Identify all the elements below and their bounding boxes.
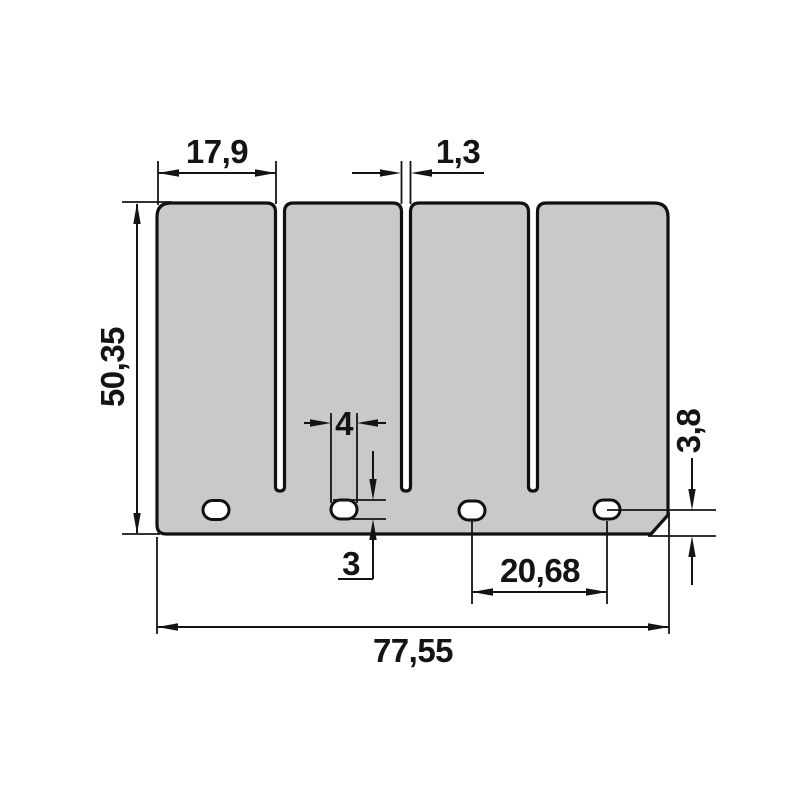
arrowhead-left: [472, 588, 493, 595]
arrowhead-right: [586, 588, 607, 595]
mounting-hole-3: [459, 501, 485, 520]
dimension-label: 50,35: [94, 327, 131, 407]
dimension-label: 3,8: [670, 409, 707, 454]
dim-finger-width: 17,9: [158, 133, 276, 205]
arrowhead-down: [688, 489, 695, 510]
dimension-label: 4: [335, 405, 354, 442]
technical-drawing-canvas: 17,9 1,3 50,35 4 3: [0, 0, 800, 800]
dimension-label: 77,55: [373, 632, 453, 669]
mounting-hole-1: [203, 501, 229, 520]
arrowhead-left: [380, 169, 401, 176]
dimension-label: 17,9: [186, 133, 248, 170]
arrowhead-right: [411, 169, 432, 176]
reed-valve-drawing: 17,9 1,3 50,35 4 3: [0, 0, 800, 800]
dim-slot-width: 1,3: [352, 133, 484, 204]
part-body: [157, 203, 668, 534]
dimension-label: 20,68: [500, 552, 580, 589]
arrowhead-up: [688, 536, 695, 557]
arrowhead-up: [133, 203, 140, 224]
arrowhead-right: [255, 169, 276, 176]
arrowhead-right: [648, 623, 669, 630]
mounting-hole-2: [331, 500, 357, 519]
dimension-label: 3: [342, 545, 360, 582]
arrowhead-left: [157, 623, 178, 630]
arrowhead-down: [133, 513, 140, 534]
dimension-label: 1,3: [436, 133, 481, 170]
arrowhead-left: [158, 169, 179, 176]
plate-outline-with-slots: [157, 203, 668, 534]
